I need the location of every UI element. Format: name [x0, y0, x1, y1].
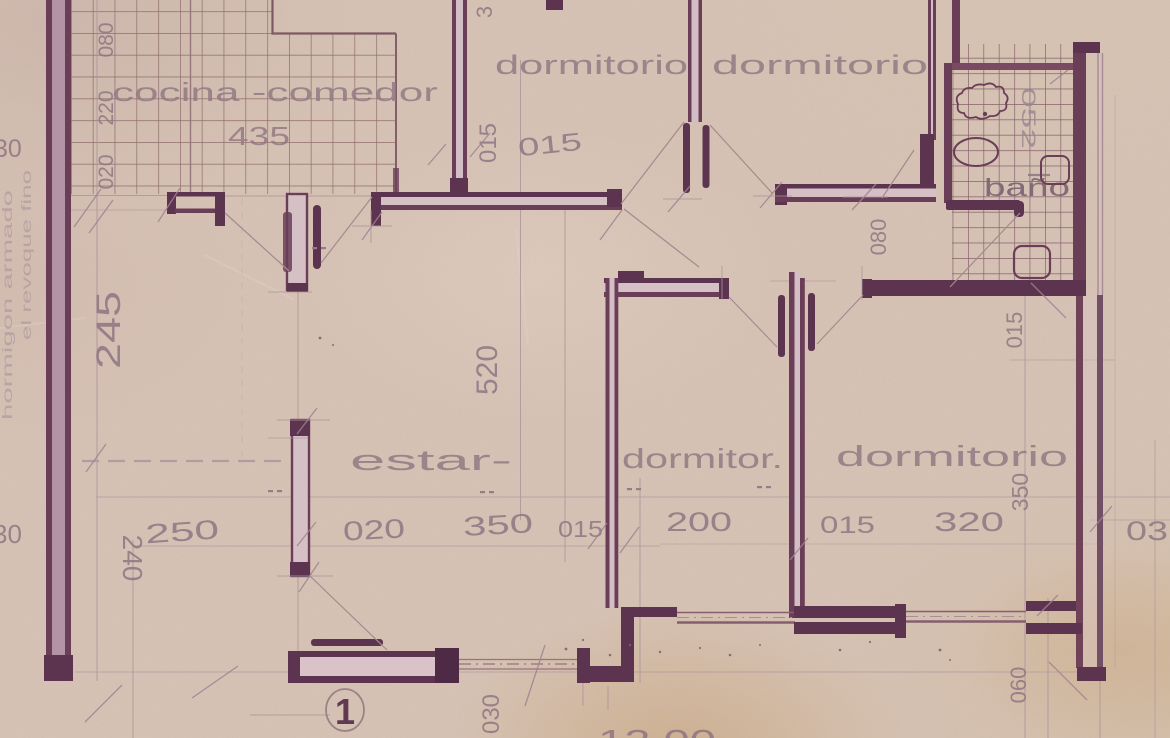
svg-text:060: 060 [1006, 667, 1031, 704]
svg-text:020: 020 [342, 513, 405, 546]
svg-text:hormigon armado: hormigon armado [0, 190, 15, 420]
svg-text:240: 240 [117, 535, 148, 582]
svg-text:12.00: 12.00 [598, 723, 716, 738]
svg-text:estar-: estar- [350, 445, 512, 477]
svg-text:080: 080 [866, 219, 891, 256]
svg-text:3: 3 [472, 6, 497, 18]
svg-text:220: 220 [95, 90, 118, 125]
svg-text:dormitorio: dormitorio [495, 50, 688, 80]
svg-text:250: 250 [144, 514, 220, 549]
svg-text:dormitorio: dormitorio [712, 50, 928, 80]
svg-text:03: 03 [1126, 516, 1168, 546]
svg-text:030: 030 [478, 694, 505, 734]
svg-text:245: 245 [90, 291, 128, 369]
svg-text:dormitor.: dormitor. [622, 443, 783, 474]
svg-text:015: 015 [475, 123, 502, 163]
svg-text:cocina -comedor: cocina -comedor [112, 77, 439, 107]
svg-text:015: 015 [1002, 312, 1027, 349]
svg-text:020: 020 [95, 154, 118, 189]
svg-text:baño: baño [984, 174, 1070, 202]
svg-text:435: 435 [228, 121, 290, 151]
svg-text:080: 080 [95, 22, 118, 57]
svg-text:320: 320 [934, 507, 1004, 537]
svg-text:1: 1 [335, 691, 355, 732]
svg-text:052: 052 [1017, 87, 1038, 149]
svg-text:350: 350 [1007, 473, 1033, 511]
svg-text:dormitorio: dormitorio [836, 441, 1068, 473]
svg-text:520: 520 [471, 345, 504, 395]
svg-text:30: 30 [0, 519, 22, 549]
svg-text:30: 30 [0, 135, 22, 163]
svg-text:el revoque fino: el revoque fino [18, 170, 34, 340]
svg-text:200: 200 [666, 507, 732, 537]
svg-text:350: 350 [462, 508, 533, 542]
svg-text:015: 015 [820, 512, 875, 539]
